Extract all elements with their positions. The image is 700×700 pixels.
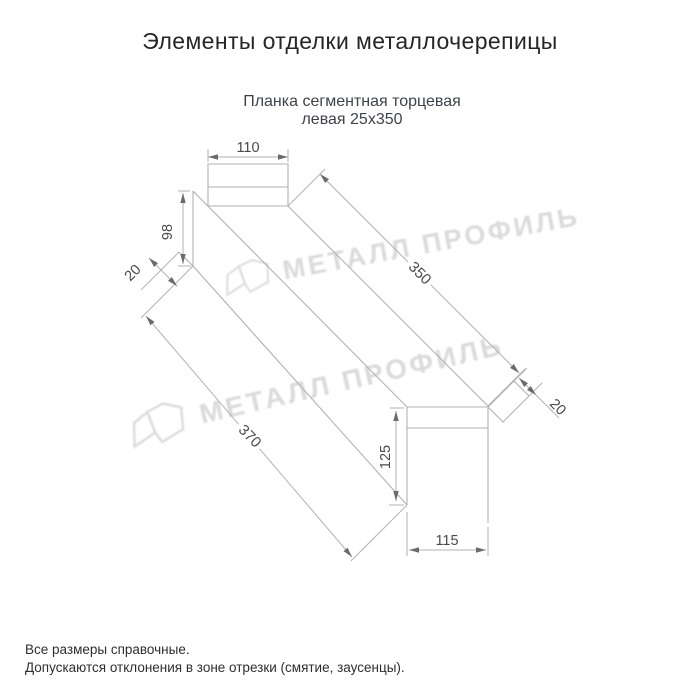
dim-label-370: 370 <box>235 421 265 451</box>
technical-drawing: 110 98 20 350 370 20 125 <box>0 0 700 700</box>
dimension-98 <box>178 191 191 266</box>
dim-label-110: 110 <box>236 140 259 156</box>
dim-label-20-right: 20 <box>546 396 569 419</box>
dim-label-125: 125 <box>378 445 394 469</box>
profile-outline <box>179 164 529 523</box>
footer-notes: Все размеры справочные. Допускаются откл… <box>25 641 405 677</box>
dimension-350 <box>288 169 525 406</box>
note-cutting-tolerance: Допускаются отклонения в зоне отрезки (с… <box>25 659 405 677</box>
dimension-370 <box>146 316 407 561</box>
dim-label-115: 115 <box>435 533 458 549</box>
dim-label-20-top: 20 <box>122 262 145 285</box>
note-dimensions-reference: Все размеры справочные. <box>25 641 405 659</box>
dimension-20-top <box>141 252 193 318</box>
dim-label-98: 98 <box>160 224 176 240</box>
